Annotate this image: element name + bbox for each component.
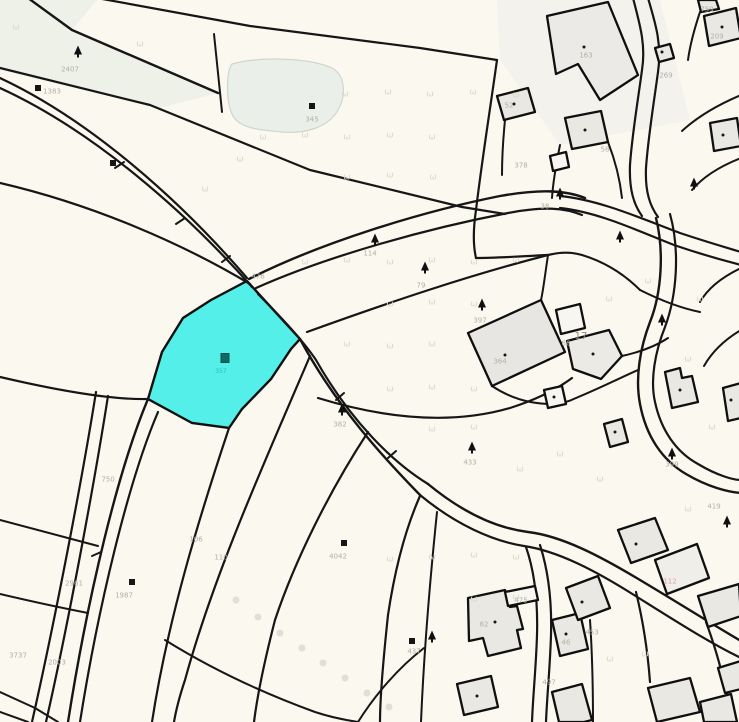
map-canvas[interactable]: 4762407138334511479397382433357750296120… <box>0 0 739 722</box>
selected-parcel-highlight[interactable] <box>148 281 300 428</box>
cadastral-map-drawing <box>0 0 739 722</box>
